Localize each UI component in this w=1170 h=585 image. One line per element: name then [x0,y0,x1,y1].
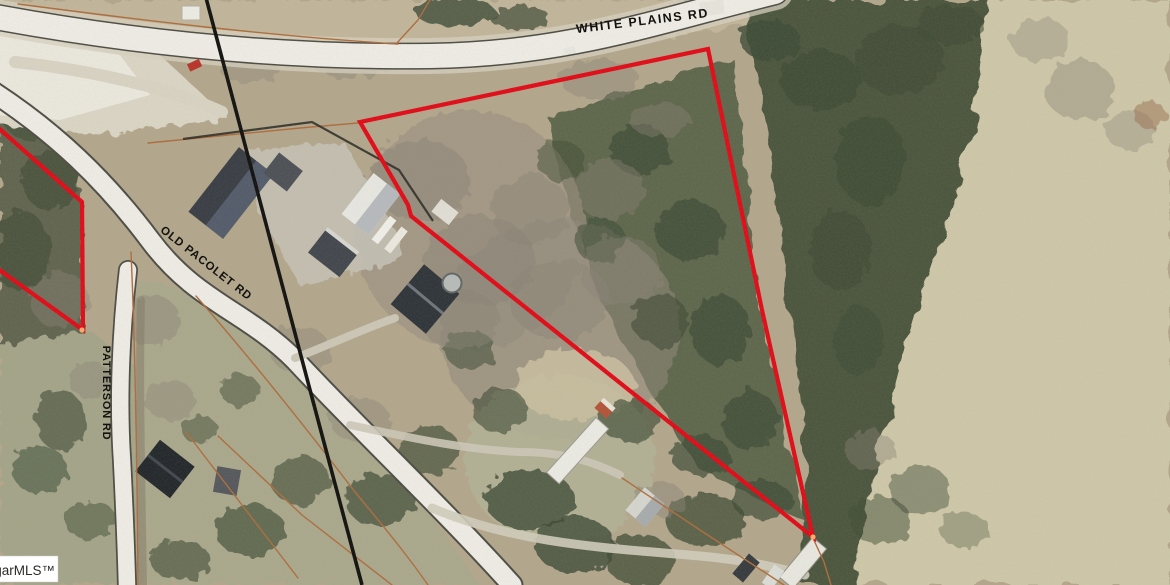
road-label-patterson: PATTERSON RD [100,346,112,441]
watermark-text: garMLS™ [0,563,55,578]
photo-grain [0,0,1170,585]
aerial-map-view[interactable]: WHITE PLAINS RD OLD PACOLET RD PATTERSON… [0,0,1170,585]
watermark: garMLS™ [0,556,58,582]
aerial-map-canvas: WHITE PLAINS RD OLD PACOLET RD PATTERSON… [0,0,1170,585]
